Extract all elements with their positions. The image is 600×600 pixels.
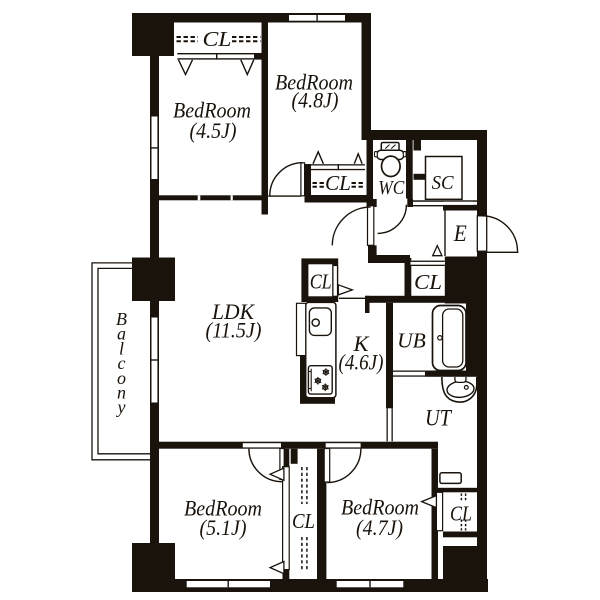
svg-text:CL: CL xyxy=(310,269,332,293)
svg-text:E: E xyxy=(453,221,467,247)
svg-text:(4.7J): (4.7J) xyxy=(356,515,403,540)
svg-text:(5.1J): (5.1J) xyxy=(200,515,247,540)
svg-text:WC: WC xyxy=(378,177,404,199)
svg-text:CL: CL xyxy=(203,27,232,51)
svg-text:(4.6J): (4.6J) xyxy=(339,350,384,375)
svg-text:CL: CL xyxy=(450,501,472,525)
svg-text:CL: CL xyxy=(325,171,351,195)
svg-text:(11.5J): (11.5J) xyxy=(206,317,262,342)
svg-text:CL: CL xyxy=(414,270,442,294)
svg-text:SC: SC xyxy=(432,172,454,194)
svg-text:UB: UB xyxy=(397,329,426,353)
svg-text:UT: UT xyxy=(425,406,453,431)
svg-text:(4.5J): (4.5J) xyxy=(190,118,237,143)
svg-text:CL: CL xyxy=(292,509,315,533)
svg-text:y: y xyxy=(116,397,126,417)
svg-text:(4.8J): (4.8J) xyxy=(292,88,339,113)
